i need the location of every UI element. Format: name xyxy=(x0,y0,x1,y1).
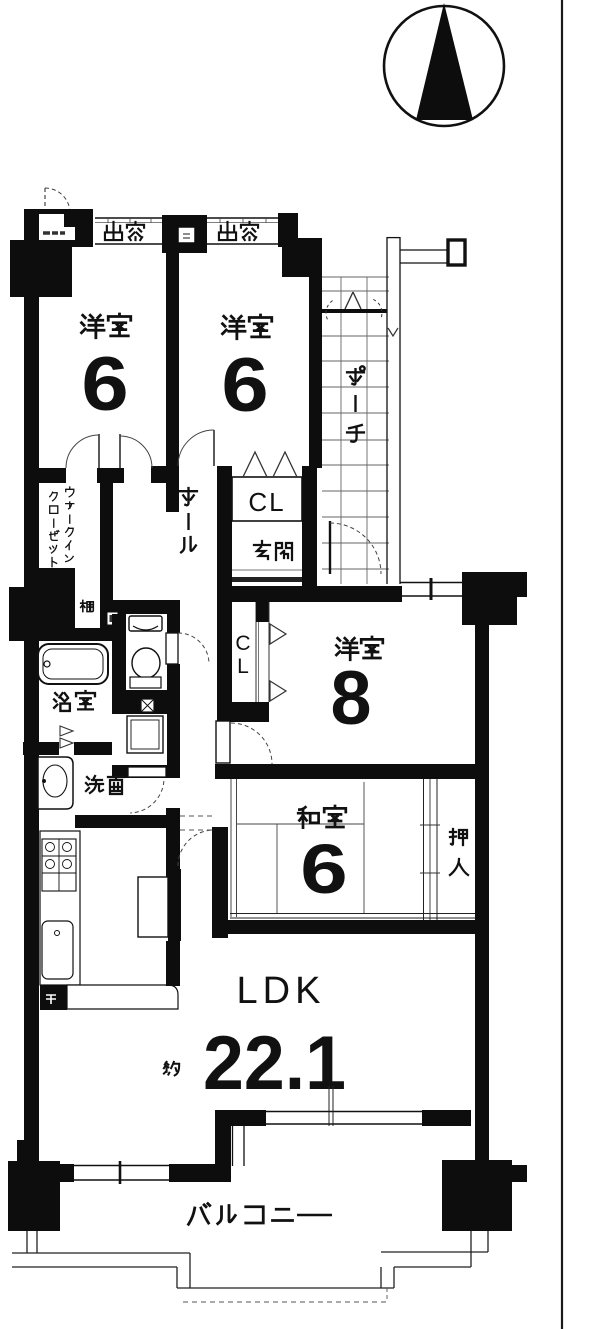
svg-text:6: 6 xyxy=(300,829,348,908)
svg-text:22.1: 22.1 xyxy=(203,1021,346,1106)
svg-text:6: 6 xyxy=(81,342,128,427)
svg-text:C: C xyxy=(235,632,250,655)
svg-text:L: L xyxy=(237,655,249,678)
svg-text:LDK: LDK xyxy=(237,970,326,1012)
svg-text:CL: CL xyxy=(248,487,285,517)
svg-text:6: 6 xyxy=(221,343,268,428)
svg-text:8: 8 xyxy=(330,655,371,740)
